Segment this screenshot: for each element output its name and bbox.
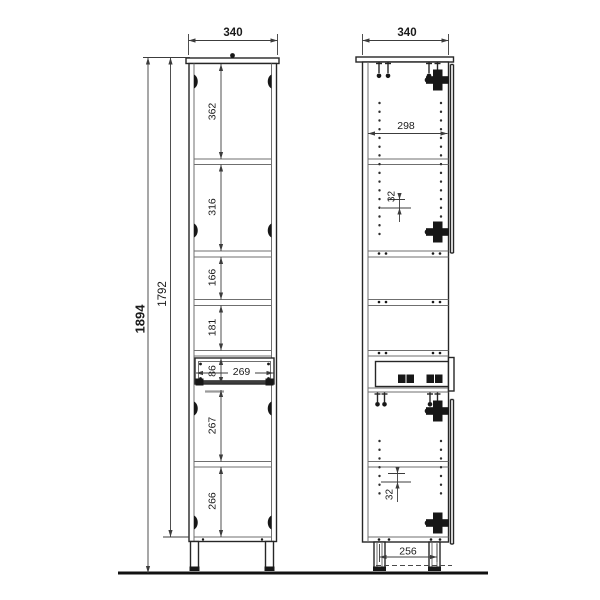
dim-label-compartment-3: 166 bbox=[207, 269, 219, 287]
side-doors bbox=[451, 65, 454, 545]
side-view: 340 bbox=[356, 27, 454, 571]
front-dimension-overall-height: 1894 bbox=[133, 58, 191, 574]
dim-label-overall-height: 1894 bbox=[133, 304, 148, 334]
front-legs bbox=[190, 542, 275, 572]
dim-label-drawer-height: 86 bbox=[207, 365, 219, 377]
dim-label-compartment-4: 181 bbox=[207, 319, 219, 337]
dim-label-front-width: 340 bbox=[223, 27, 242, 39]
top-knob-icon bbox=[230, 53, 235, 58]
side-dimension-depth: 340 bbox=[363, 27, 449, 55]
dim-label-internal-depth: 298 bbox=[397, 120, 415, 132]
dim-label-compartment-5: 267 bbox=[207, 417, 219, 435]
front-carcass bbox=[186, 53, 279, 541]
front-dimension-carcass-height: 1792 bbox=[157, 58, 189, 538]
front-view: 340 bbox=[133, 27, 280, 573]
dim-label-drawer-width: 269 bbox=[233, 366, 251, 378]
dim-label-compartment-6: 266 bbox=[207, 492, 219, 510]
dim-label-foot-spacing: 256 bbox=[399, 546, 417, 558]
dim-label-compartment-1: 362 bbox=[207, 103, 219, 121]
side-drawer bbox=[376, 358, 455, 392]
technical-drawing-cabinet: 340 bbox=[0, 0, 600, 600]
dim-label-hole-pitch-upper: 32 bbox=[387, 191, 398, 203]
dim-label-compartment-2: 316 bbox=[207, 198, 219, 216]
drawing-canvas: 340 bbox=[0, 0, 600, 600]
dim-label-carcass-height: 1792 bbox=[157, 281, 169, 307]
front-dimension-width: 340 bbox=[189, 27, 278, 55]
dim-label-side-depth: 340 bbox=[397, 27, 416, 39]
dim-label-hole-pitch-lower: 32 bbox=[385, 489, 396, 501]
